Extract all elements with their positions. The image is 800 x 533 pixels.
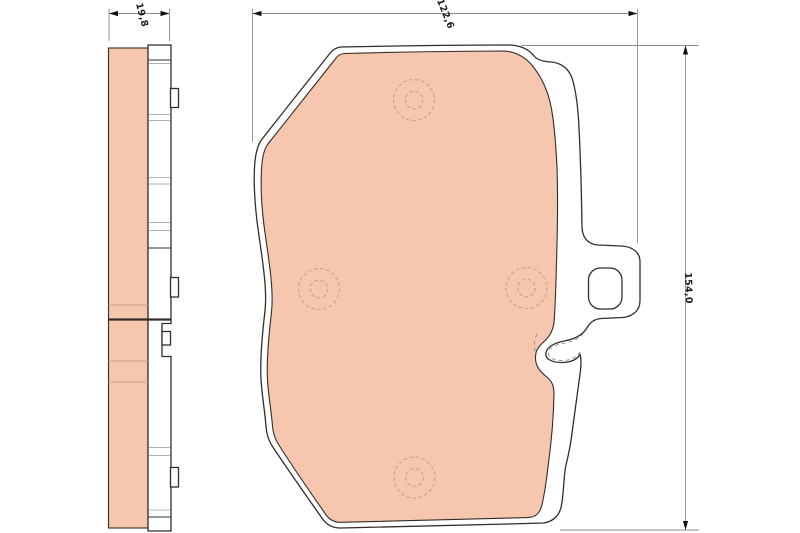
arrow-down-icon — [683, 521, 688, 530]
side-view-tab-bottom — [171, 468, 179, 488]
front-view — [254, 45, 640, 528]
arrow-right-icon — [161, 11, 170, 16]
arrow-right-icon — [629, 11, 638, 16]
front-view-friction-material — [261, 51, 557, 522]
brake-pad-technical-drawing: 19,8 122,6 154,0 — [0, 0, 800, 533]
side-view-backing-plate — [148, 45, 171, 531]
side-view-tab-middle — [171, 278, 179, 298]
height-label: 154,0 — [682, 272, 694, 304]
front-view-ear-hole — [589, 268, 623, 309]
arrow-left-icon — [253, 11, 262, 16]
side-view-friction-material — [109, 48, 149, 528]
thickness-label: 19,8 — [133, 2, 150, 29]
side-view — [109, 45, 179, 531]
arrow-up-icon — [683, 46, 688, 55]
drawing-canvas: 19,8 122,6 154,0 — [0, 0, 800, 533]
side-view-hook-section — [162, 332, 171, 346]
width-label: 122,6 — [434, 0, 456, 31]
arrow-left-icon — [109, 11, 118, 16]
side-view-tab-top — [171, 89, 179, 108]
dimension-thickness: 19,8 — [109, 2, 170, 41]
